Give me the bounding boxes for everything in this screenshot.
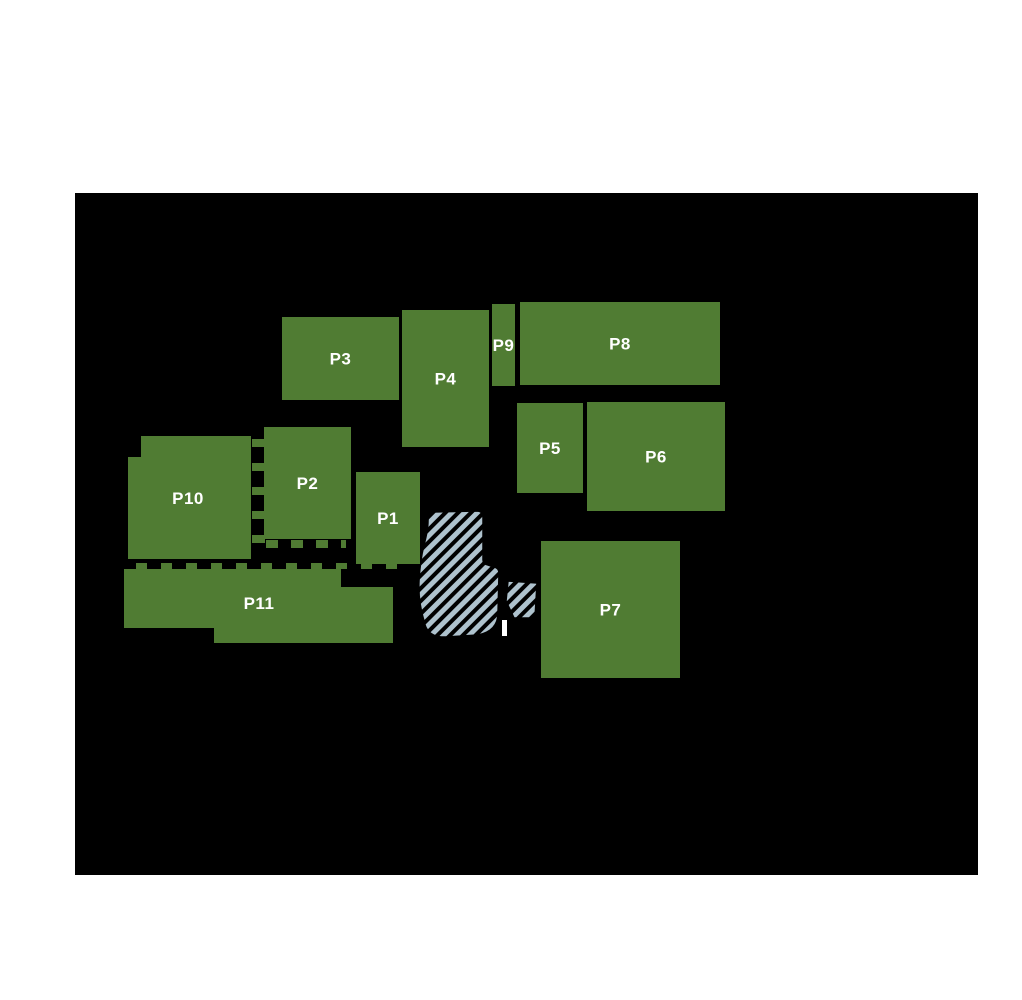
site-map-svg: P1P2P3P4P5P6P7P8P9P10P11 xyxy=(75,193,978,875)
page-background: P1P2P3P4P5P6P7P8P9P10P11 xyxy=(0,0,1022,1000)
parcel-P8[interactable] xyxy=(520,302,720,385)
boundary-dash xyxy=(136,563,147,569)
parcel-P5[interactable] xyxy=(517,403,583,493)
parcel-P10[interactable] xyxy=(128,436,251,559)
parcel-P6[interactable] xyxy=(587,402,725,511)
boundary-dash xyxy=(286,563,297,569)
parcel-P7[interactable] xyxy=(541,541,680,678)
boundary-dash xyxy=(386,563,397,569)
hatched-area-main xyxy=(419,511,499,637)
boundary-dash xyxy=(252,511,265,519)
boundary-dash xyxy=(266,540,278,548)
boundary-dash xyxy=(291,540,303,548)
boundary-dash-row-2 xyxy=(266,540,346,548)
boundary-dash xyxy=(311,563,322,569)
boundary-dash xyxy=(161,563,172,569)
boundary-dash xyxy=(261,563,272,569)
boundary-dash xyxy=(252,463,265,471)
boundary-dash xyxy=(316,540,328,548)
parcel-P2[interactable] xyxy=(264,427,351,539)
marker-layer xyxy=(502,620,507,636)
hatched-area-small xyxy=(506,581,537,618)
parcel-P4[interactable] xyxy=(402,310,489,447)
white-marker xyxy=(502,620,507,636)
boundary-dash xyxy=(236,563,247,569)
boundary-dash xyxy=(252,535,265,543)
boundary-dash-row-1 xyxy=(252,439,265,543)
boundary-dash xyxy=(336,563,347,569)
boundary-dash xyxy=(252,487,265,495)
boundary-dash xyxy=(211,563,222,569)
parcel-P9[interactable] xyxy=(492,304,515,386)
parcel-P1[interactable] xyxy=(356,472,420,564)
boundary-dash xyxy=(341,540,346,548)
boundary-dash xyxy=(361,563,372,569)
parcel-P3[interactable] xyxy=(282,317,399,400)
boundary-dash xyxy=(252,439,265,447)
site-plan-map: P1P2P3P4P5P6P7P8P9P10P11 xyxy=(75,193,978,875)
parcel-P11[interactable] xyxy=(124,569,393,643)
boundary-dash xyxy=(186,563,197,569)
hatch-layer xyxy=(419,511,537,637)
